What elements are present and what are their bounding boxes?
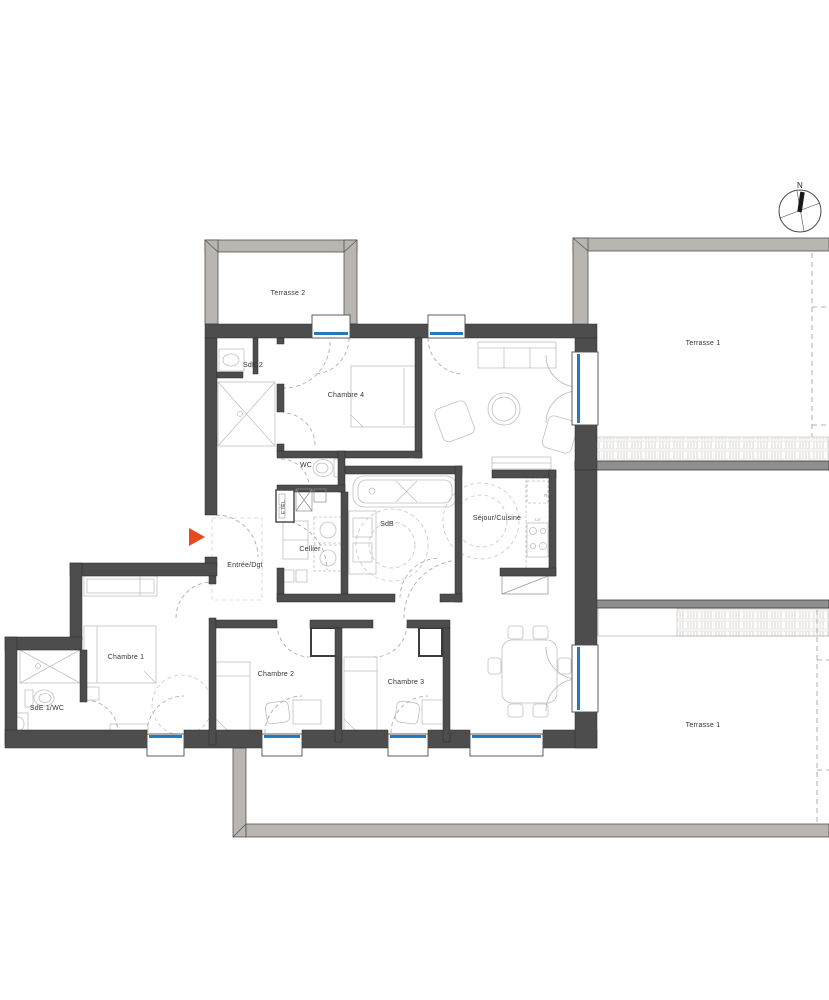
hatch-band-upper [592,437,829,461]
armchair-left [433,399,476,443]
sde1-door-arc [85,700,118,733]
terrasse2-left-wall [205,240,218,324]
dining-table [502,640,557,703]
terrasse1-left-wall [573,238,588,330]
apartment-walls [5,324,597,748]
chambre3-bed [344,657,377,731]
divider-wall-lower [593,600,829,608]
lower-terrace-stub-wall [233,748,246,837]
sejour-door-arc [404,560,462,618]
label-sde-2: SdE 2 [243,362,263,369]
compass: N [779,181,821,232]
lower-terrace-band-wall [246,824,829,837]
floor-plan-svg: N Terrasse 2 Terrasse 1 Terrasse 1 SdE 2… [0,0,829,1000]
label-fridge: R [544,493,548,498]
chambre4-door-arc [284,342,330,388]
compass-north-label: N [797,181,803,190]
entrance-door-arc [216,515,258,557]
balcony-window-1 [572,352,598,425]
hall-clearance-rect [212,518,262,600]
terrasse2-right-wall [344,240,357,324]
chambre2-bed [216,662,250,731]
label-cellier: Cellier [299,546,321,553]
terrasse1-top-wall [573,238,829,251]
label-chambre-1: Chambre 1 [108,654,144,661]
chambre1-window-arc [147,696,184,733]
chambre3-wardrobe [419,628,442,656]
kitchen-hob [527,523,548,557]
cellier-appliance-1 [314,517,342,543]
sofa [478,342,556,368]
label-etel: ETEL [281,500,287,515]
chambre2-wardrobe [311,628,336,656]
kitchen-fridge [527,481,548,503]
hatch-band-lower [677,609,829,636]
chambre4-door-arc-2 [283,413,315,445]
kitchen-counter [526,478,549,570]
floor-plan: N Terrasse 2 Terrasse 1 Terrasse 1 SdE 2… [0,0,829,1000]
chambre3-window-arc [391,696,428,733]
compass-needle [800,192,803,212]
chambre2-window-arc [265,696,302,733]
balcony-window-2 [572,645,598,712]
chambre2-door-arc [277,624,310,657]
label-chambre-3: Chambre 3 [388,679,424,686]
label-terrasse-1-upper: Terrasse 1 [686,340,721,347]
label-entree-dgt: Entrée/Dgt [227,562,262,569]
label-sde-1-wc: SdE 1/WC [30,705,64,712]
entrance-arrow [189,528,205,546]
label-terrasse-1-lower: Terrasse 1 [686,722,721,729]
label-wc: WC [300,462,312,469]
label-chambre-2: Chambre 2 [258,671,294,678]
chambre3-desk [422,700,446,724]
chambre3-chair [395,701,421,725]
terrasse2-top-wall [205,240,357,252]
label-sejour-cuisine: Séjour/Cuisine [473,515,521,522]
label-chambre-4: Chambre 4 [328,392,364,399]
window-a-swing-arc [313,338,349,374]
label-lv: LV [535,517,541,522]
label-terrasse-2: Terrasse 2 [271,290,306,297]
terrace-hatch-bands [575,437,829,636]
chambre3-door-arc [374,624,407,657]
coffee-table [488,393,520,425]
chambre2-desk [293,700,321,724]
chambre1-door-arc [176,582,212,618]
chambre2-chair [265,700,291,724]
label-sdb: SdB [380,521,394,528]
sdb-bathtub [353,476,457,507]
window-b-swing-arc [428,338,464,374]
boundary-dashed-lines [812,253,829,822]
divider-wall-upper [575,461,829,470]
